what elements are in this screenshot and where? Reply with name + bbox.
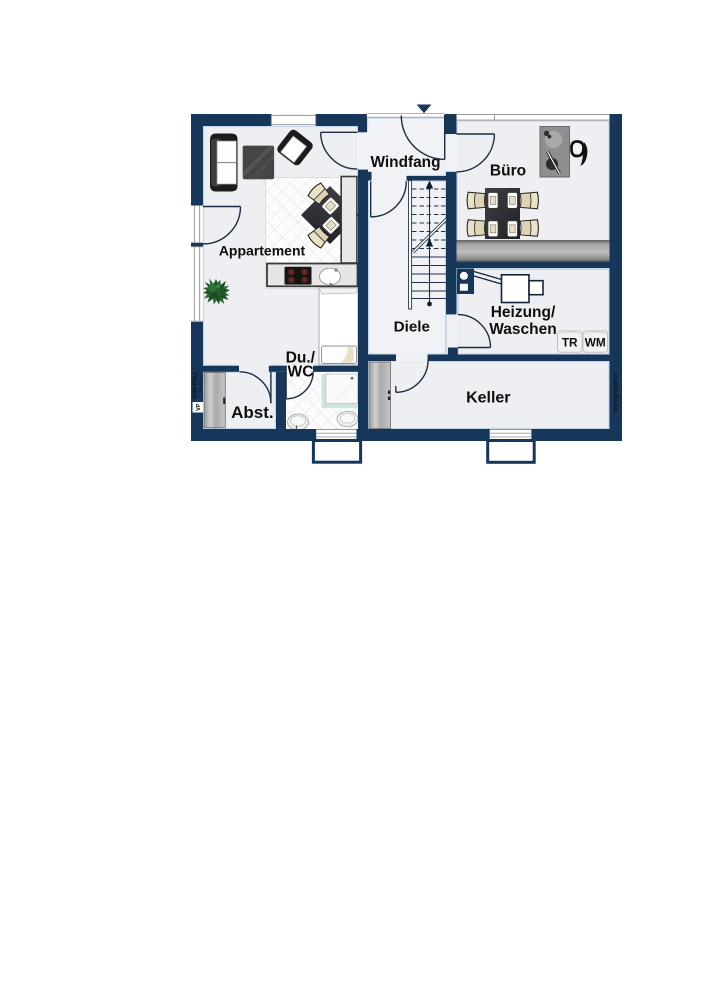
svg-text:WC: WC xyxy=(288,364,314,381)
svg-text:IMMOBILIEN: IMMOBILIEN xyxy=(199,377,203,393)
svg-text:Diele: Diele xyxy=(394,319,430,336)
svg-text:VP: VP xyxy=(196,403,202,411)
svg-text:Heizung/: Heizung/ xyxy=(491,304,556,321)
svg-text:TR: TR xyxy=(562,336,578,350)
svg-text:WM: WM xyxy=(585,336,606,350)
svg-text:Keller: Keller xyxy=(466,389,510,406)
svg-text:Immogrundriss: Immogrundriss xyxy=(614,373,620,413)
svg-text:Büro: Büro xyxy=(490,163,526,180)
svg-text:VON POLL: VON POLL xyxy=(193,371,199,399)
svg-text:Abst.: Abst. xyxy=(231,403,274,422)
svg-text:Waschen: Waschen xyxy=(489,321,556,338)
svg-text:Appartement: Appartement xyxy=(219,243,306,259)
svg-text:Windfang: Windfang xyxy=(371,154,441,171)
